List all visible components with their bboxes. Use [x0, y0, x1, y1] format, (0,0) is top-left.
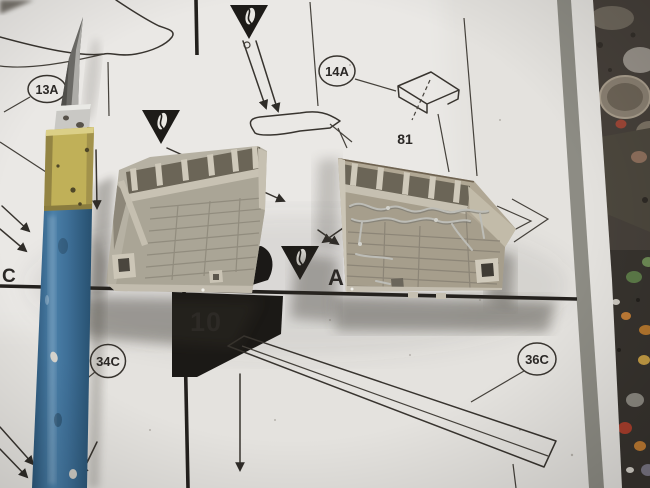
photo-model-instructions-scene: 13A 14A 81 A 10: [0, 0, 650, 488]
photo-vignette: [0, 0, 650, 488]
